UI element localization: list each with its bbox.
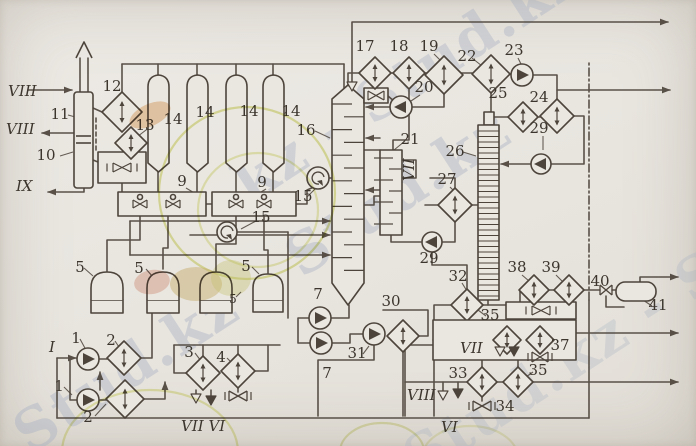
label-41: 41 (648, 296, 667, 314)
label-26: 26 (445, 142, 464, 160)
pump-29-right (531, 154, 551, 174)
label-18: 18 (389, 37, 408, 55)
column-shell (332, 85, 364, 305)
label-35: 35 (480, 306, 499, 324)
label-32: 32 (448, 267, 467, 285)
vessel-shell (74, 92, 93, 188)
label-2: 2 (106, 331, 116, 349)
label-12: 12 (102, 77, 121, 95)
label-4: 4 (216, 348, 226, 366)
pump-7b (310, 332, 332, 354)
condenser-box-20 (364, 88, 388, 103)
pump-15 (307, 167, 329, 189)
column-shell (380, 150, 402, 235)
pump-body (217, 222, 237, 242)
stack-arrow (76, 42, 92, 58)
stream-label-VII: VII (400, 157, 418, 181)
label-7: 7 (313, 285, 323, 303)
label-34: 34 (495, 397, 514, 415)
label-37: 37 (550, 336, 569, 354)
furnace-5-2 (147, 300, 179, 313)
dome-shell (91, 272, 123, 300)
label-25: 25 (488, 84, 507, 102)
furnace-dome-5-1 (91, 272, 123, 300)
column-26 (478, 112, 499, 300)
label-21: 21 (400, 130, 419, 148)
label-9: 9 (257, 173, 267, 191)
label-7: 7 (322, 364, 332, 382)
label-35: 35 (528, 361, 547, 379)
heat-exchanger-4 (221, 354, 255, 388)
label-1: 1 (71, 329, 81, 347)
column-neck (484, 112, 494, 125)
label-19: 19 (419, 37, 438, 55)
label-14: 14 (239, 102, 258, 120)
pump-1a (77, 348, 99, 370)
label-29: 29 (529, 119, 548, 137)
label-29: 29 (419, 249, 438, 267)
heat-exchanger-38 (519, 275, 549, 305)
pump-15b (217, 222, 237, 242)
pump-7a (309, 307, 331, 329)
heat-exchanger-39 (554, 275, 584, 305)
label-24: 24 (529, 88, 548, 106)
stream-label-IX: IX (15, 177, 34, 195)
label-17: 17 (355, 37, 374, 55)
pump-20 (390, 96, 412, 118)
pipe (332, 334, 363, 343)
stream-label-VII-VI: VII VI (181, 417, 226, 435)
label-15: 15 (251, 208, 270, 226)
pipe (331, 305, 349, 318)
label-23: 23 (504, 41, 523, 59)
label-1: 1 (54, 377, 64, 395)
stream-label-VIII: VIII (407, 386, 437, 404)
flare-vessel-11-10 (74, 92, 93, 188)
label-9: 9 (177, 172, 187, 190)
stream-label-I: I (48, 338, 56, 356)
label-5: 5 (75, 258, 85, 276)
label-27: 27 (437, 170, 456, 188)
pipe (391, 235, 421, 242)
air-cooler-13-box (98, 152, 146, 183)
label-leader (60, 152, 73, 156)
valve-actuator-icon (262, 195, 267, 200)
pipe (93, 108, 102, 112)
pipe (298, 318, 310, 343)
stream-label-VIII: VIII (6, 120, 36, 138)
valve-actuator-icon (171, 195, 176, 200)
scanned-flowsheet-page: Stud.kz - Stud.kzkz - Stud.kzStud.kz - S… (0, 0, 696, 446)
logo-watermark-shape (211, 260, 251, 296)
pump-23 (511, 64, 533, 86)
label-22: 22 (457, 47, 476, 65)
label-20: 20 (414, 78, 433, 96)
label-10: 10 (36, 146, 55, 164)
pump-31 (363, 323, 385, 345)
label-31: 31 (347, 344, 366, 362)
label-3: 3 (184, 343, 194, 361)
heat-exchanger-30 (387, 320, 419, 352)
furnace-5-3 (200, 300, 232, 313)
label-11: 11 (50, 105, 69, 123)
label-39: 39 (541, 258, 560, 276)
label-38: 38 (507, 258, 526, 276)
label-33: 33 (448, 364, 467, 382)
label-leader (84, 268, 93, 276)
label-40: 40 (590, 272, 609, 290)
furnace-5-1 (91, 300, 123, 313)
pipe (255, 345, 268, 371)
stream-label-VII: VII (460, 339, 484, 357)
adsorber-14-2 (187, 75, 208, 172)
stream-label-VIII: VIII (8, 82, 38, 100)
valve-actuator-icon (138, 195, 143, 200)
air-cooler-35-box (506, 302, 576, 319)
column-16 (332, 85, 364, 305)
process-flow-diagram: Stud.kz - Stud.kzkz - Stud.kzStud.kz - S… (0, 0, 696, 446)
label-15: 15 (293, 187, 312, 205)
drain-filled-3-icon (206, 396, 216, 405)
valve-actuator-icon (234, 195, 239, 200)
label-30: 30 (381, 292, 400, 310)
furnace-5-4 (253, 300, 283, 312)
pump-body (307, 167, 329, 189)
pipe (443, 222, 455, 242)
